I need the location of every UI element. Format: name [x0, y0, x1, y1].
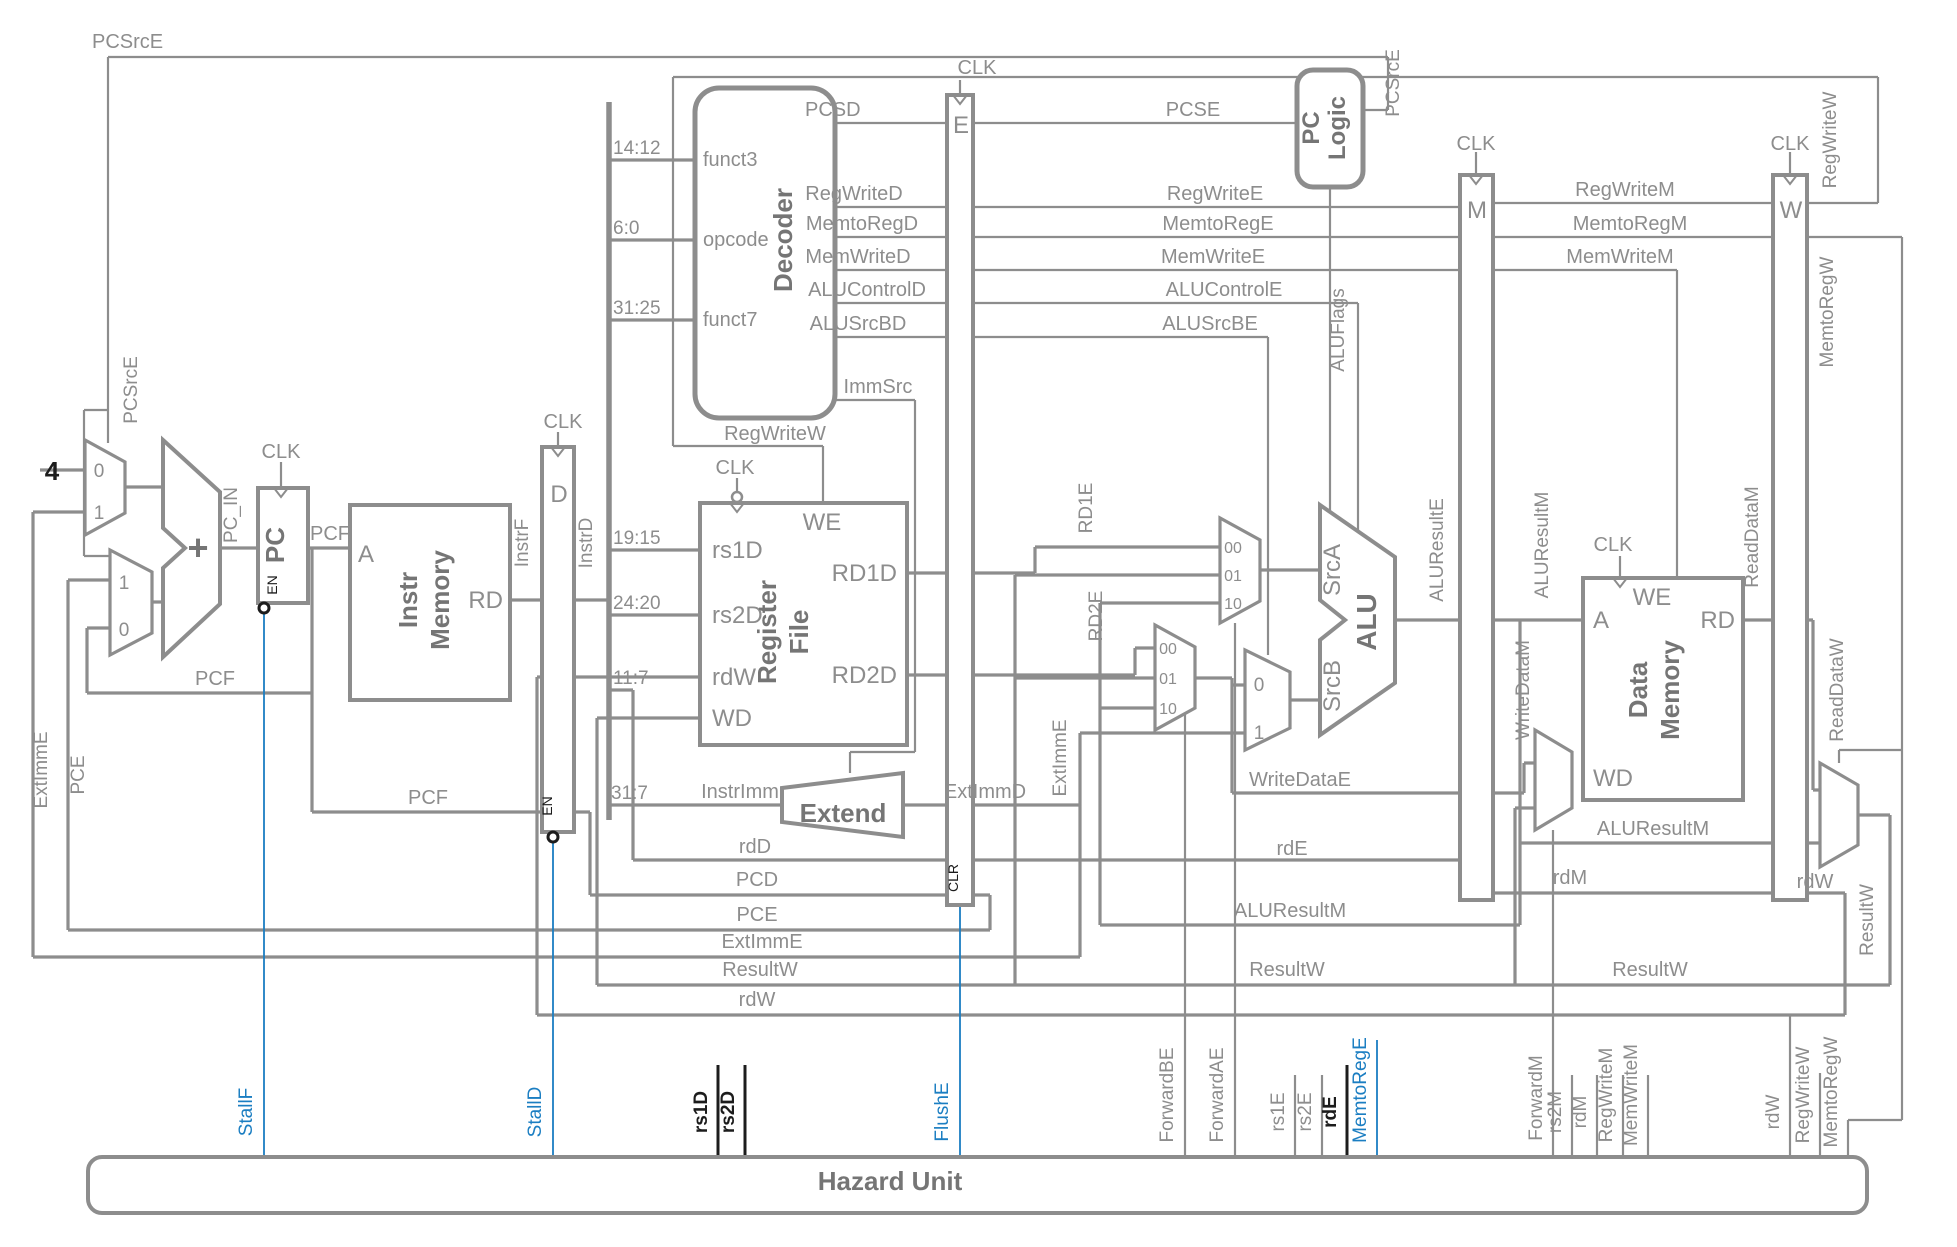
- rf-we-port: WE: [803, 509, 842, 536]
- fwdb-01: 01: [1159, 671, 1177, 688]
- rdd-line-label: rdD: [739, 836, 771, 858]
- rdw-line-label-0: rdW: [739, 989, 776, 1011]
- extimmd-label: ExtImmD: [944, 781, 1026, 803]
- alucontrold-label: ALUControlD: [808, 279, 926, 301]
- forwardbe-label: ForwardBE: [1157, 1047, 1178, 1142]
- dmem-title-1: Data: [1623, 661, 1653, 718]
- regwritem-label: RegWriteM: [1575, 179, 1675, 201]
- mux-pc-src-a: [85, 440, 125, 535]
- wreg-title: W: [1780, 197, 1803, 224]
- imem-rd-port: RD: [468, 587, 503, 614]
- alucontrole-label: ALUControlE: [1166, 279, 1283, 301]
- stallf-label: StallF: [236, 1088, 257, 1137]
- dmem-title-2: Memory: [1655, 640, 1685, 740]
- fwda-00: 00: [1224, 540, 1242, 557]
- rdm-line-label: rdM: [1553, 867, 1587, 889]
- regwritew-mid-label: RegWriteW: [724, 423, 826, 445]
- regwritee-label: RegWriteE: [1167, 183, 1263, 205]
- pc-enable-bubble: [259, 603, 269, 613]
- rf-wd-port: WD: [712, 705, 752, 732]
- pclogic-title-2: Logic: [1324, 96, 1351, 160]
- fwdb-10: 10: [1159, 701, 1177, 718]
- clk-pc-label: CLK: [262, 441, 302, 463]
- clk-dmem-label: CLK: [1594, 534, 1634, 556]
- rs2d-hazard-label: rs2D: [718, 1091, 739, 1133]
- ereg-title: E: [953, 112, 969, 139]
- fwda-10: 10: [1224, 596, 1242, 613]
- memtoregw-hazard-label: MemtoRegW: [1821, 1037, 1842, 1148]
- readdataw-vert-label: ReadDataW: [1827, 638, 1848, 742]
- rdm-hazard-label: rdM: [1570, 1096, 1591, 1129]
- aluresulte-label: ALUResultE: [1427, 498, 1448, 602]
- mux-pc-src-b: [110, 550, 152, 655]
- e-clr-label: CLR: [945, 864, 961, 892]
- pcd-line-label: PCD: [736, 869, 778, 891]
- dreg-title: D: [550, 481, 567, 508]
- rd2e-label: RD2E: [1086, 591, 1107, 642]
- rs1e-hazard-label: rs1E: [1268, 1092, 1289, 1131]
- regwritew-right-label: RegWriteW: [1820, 92, 1841, 189]
- aluflags-label: ALUFlags: [1328, 288, 1349, 371]
- srca-port: SrcA: [1319, 544, 1346, 596]
- flushe-label: FlushE: [932, 1082, 953, 1141]
- hazard-unit: [88, 1157, 1867, 1213]
- resultw-vert-label: ResultW: [1857, 884, 1878, 956]
- pcse-label: PCSE: [1166, 99, 1220, 121]
- srcb-mux-1: 1: [1254, 723, 1265, 744]
- pc-in-label: PC_IN: [221, 487, 242, 543]
- mux-alusrcb: [1245, 650, 1290, 750]
- opcode-port: opcode: [703, 229, 769, 251]
- clk-e-label: CLK: [958, 57, 998, 79]
- mreg-title: M: [1467, 197, 1487, 224]
- mux-a-1: 1: [94, 503, 105, 524]
- rs2m-hazard-label: rs2M: [1545, 1091, 1566, 1133]
- clk-regfile-label: CLK: [716, 457, 756, 479]
- memwritee-label: MemWriteE: [1161, 246, 1265, 268]
- clk-d-label: CLK: [544, 411, 584, 433]
- pcf-label-2: PCF: [195, 668, 235, 690]
- regfile-clock-bubble: [732, 492, 742, 502]
- writedatae-label: WriteDataE: [1249, 769, 1351, 791]
- resultw-line-label-1: ResultW: [1249, 959, 1325, 981]
- rf-rdw-port: rdW: [712, 664, 756, 691]
- instrd-label: InstrD: [576, 518, 597, 569]
- extimme-vert-label: ExtImmE: [1050, 719, 1071, 796]
- pcsd-label: PCSD: [805, 99, 861, 121]
- alusrcbe-label: ALUSrcBE: [1162, 313, 1258, 335]
- pipeline-register-m: [1460, 175, 1493, 900]
- memtoregd-label: MemtoRegD: [806, 213, 918, 235]
- regwrited-label: RegWriteD: [805, 183, 902, 205]
- dmem-rd-port: RD: [1700, 607, 1735, 634]
- pc-title: PC: [260, 527, 290, 563]
- memwrited-label: MemWriteD: [805, 246, 910, 268]
- fwdb-00: 00: [1159, 641, 1177, 658]
- dmem-a-port: A: [1593, 607, 1609, 634]
- pce-left-vert-label: PCE: [68, 755, 89, 794]
- pc-en-label: EN: [264, 575, 280, 594]
- resultw-line-label-2: ResultW: [1612, 959, 1688, 981]
- rf-title-1: Register: [752, 580, 782, 684]
- rdw-right-label: rdW: [1797, 871, 1834, 893]
- immsrc-label: ImmSrc: [844, 376, 913, 398]
- bits-6-0: 6:0: [613, 218, 639, 239]
- decoder-title: Decoder: [768, 188, 798, 292]
- srcb-mux-0: 0: [1254, 675, 1265, 696]
- srcb-port: SrcB: [1319, 660, 1346, 712]
- memtorege-label: MemtoRegE: [1162, 213, 1273, 235]
- mux-forward-m: [1535, 730, 1572, 830]
- alusrcbd-label: ALUSrcBD: [810, 313, 907, 335]
- imem-title-2: Memory: [425, 550, 455, 650]
- rf-rd2d-port: RD2D: [832, 662, 897, 689]
- extend-title: Extend: [800, 798, 887, 828]
- rs1d-hazard-label: rs1D: [691, 1091, 712, 1133]
- bits-24-20: 24:20: [613, 593, 661, 614]
- d-en-label: EN: [539, 796, 555, 815]
- hazard-black-wires: [718, 1065, 1347, 1157]
- memtoregm-label: MemtoRegM: [1573, 213, 1687, 235]
- instrf-label: InstrF: [512, 519, 533, 568]
- aluresultm-vert-label: ALUResultM: [1532, 492, 1553, 599]
- const-four: 4: [45, 456, 60, 486]
- mux-a-0: 0: [94, 461, 105, 482]
- extimme-line-label: ExtImmE: [721, 931, 802, 953]
- mux-b-1: 1: [119, 573, 130, 594]
- stalld-label: StallD: [525, 1087, 546, 1138]
- memtoregw-right-label: MemtoRegW: [1817, 257, 1838, 368]
- mux-result: [1820, 763, 1858, 867]
- instrimm-label: InstrImm: [701, 781, 779, 803]
- extimme-left-vert-label: ExtImmE: [31, 731, 52, 808]
- imem-title-1: Instr: [393, 572, 423, 628]
- rde-line-label: rdE: [1276, 838, 1307, 860]
- pipeline-register-w: [1773, 175, 1807, 900]
- forwardm-label: ForwardM: [1526, 1055, 1547, 1141]
- bits-11-7: 11:7: [613, 668, 649, 689]
- rf-rd1d-port: RD1D: [832, 560, 897, 587]
- rdw-hazard-label: rdW: [1763, 1095, 1784, 1130]
- rd1e-label: RD1E: [1076, 483, 1097, 534]
- dmem-we-port: WE: [1633, 584, 1672, 611]
- funct3-port: funct3: [703, 149, 757, 171]
- pcsrce-left-vert-label: PCSrcE: [121, 356, 142, 424]
- d-enable-bubble: [548, 832, 558, 842]
- pcsrce-top-label: PCSrcE: [92, 31, 163, 53]
- bits-19-15: 19:15: [613, 528, 661, 549]
- readdatam-vert-label: ReadDataM: [1742, 486, 1763, 587]
- forwardae-label: ForwardAE: [1207, 1047, 1228, 1142]
- writedatam-vert-label: WriteDataM: [1513, 640, 1534, 740]
- pcf-label-3: PCF: [408, 787, 448, 809]
- rde-hazard-label: rdE: [1320, 1096, 1341, 1128]
- adder-plus: +: [187, 527, 208, 568]
- funct7-port: funct7: [703, 309, 757, 331]
- pce-line-label: PCE: [736, 904, 777, 926]
- regwritew-hazard-label: RegWriteW: [1793, 1047, 1814, 1144]
- rf-rs1d-port: rs1D: [712, 537, 763, 564]
- regwritem-hazard-label: RegWriteM: [1596, 1048, 1617, 1143]
- dmem-wd-port: WD: [1593, 765, 1633, 792]
- fwda-01: 01: [1224, 568, 1242, 585]
- memtorege-hazard-label: MemtoRegE: [1350, 1037, 1371, 1143]
- alu-title: ALU: [1351, 593, 1382, 651]
- pcf-label-1: PCF: [310, 523, 350, 545]
- bits-14-12: 14:12: [613, 138, 661, 159]
- bits-31-25: 31:25: [613, 298, 661, 319]
- memwritem-label: MemWriteM: [1566, 246, 1673, 268]
- rf-title-2: File: [784, 610, 814, 655]
- mux-b-0: 0: [119, 620, 130, 641]
- rs2e-hazard-label: rs2E: [1295, 1092, 1316, 1131]
- pcsrce-right-label: PCSrcE: [1383, 49, 1404, 117]
- resultw-line-label-0: ResultW: [722, 959, 798, 981]
- memwritem-hazard-label: MemWriteM: [1621, 1044, 1642, 1146]
- bits-31-7: 31:7: [611, 783, 648, 804]
- pclogic-title-1: PC: [1298, 111, 1325, 144]
- clk-w-label: CLK: [1771, 133, 1811, 155]
- aluresultm-line-label-2: ALUResultM: [1597, 818, 1709, 840]
- aluresultm-line-label-1: ALUResultM: [1234, 900, 1346, 922]
- processor-pipeline-diagram: PCSrcECLKCLKCLKCLKCLKCLKCLK40110+PC_INPC…: [0, 0, 1957, 1247]
- clk-m-label: CLK: [1457, 133, 1497, 155]
- imem-a-port: A: [358, 541, 374, 568]
- hazard-title: Hazard Unit: [818, 1166, 963, 1196]
